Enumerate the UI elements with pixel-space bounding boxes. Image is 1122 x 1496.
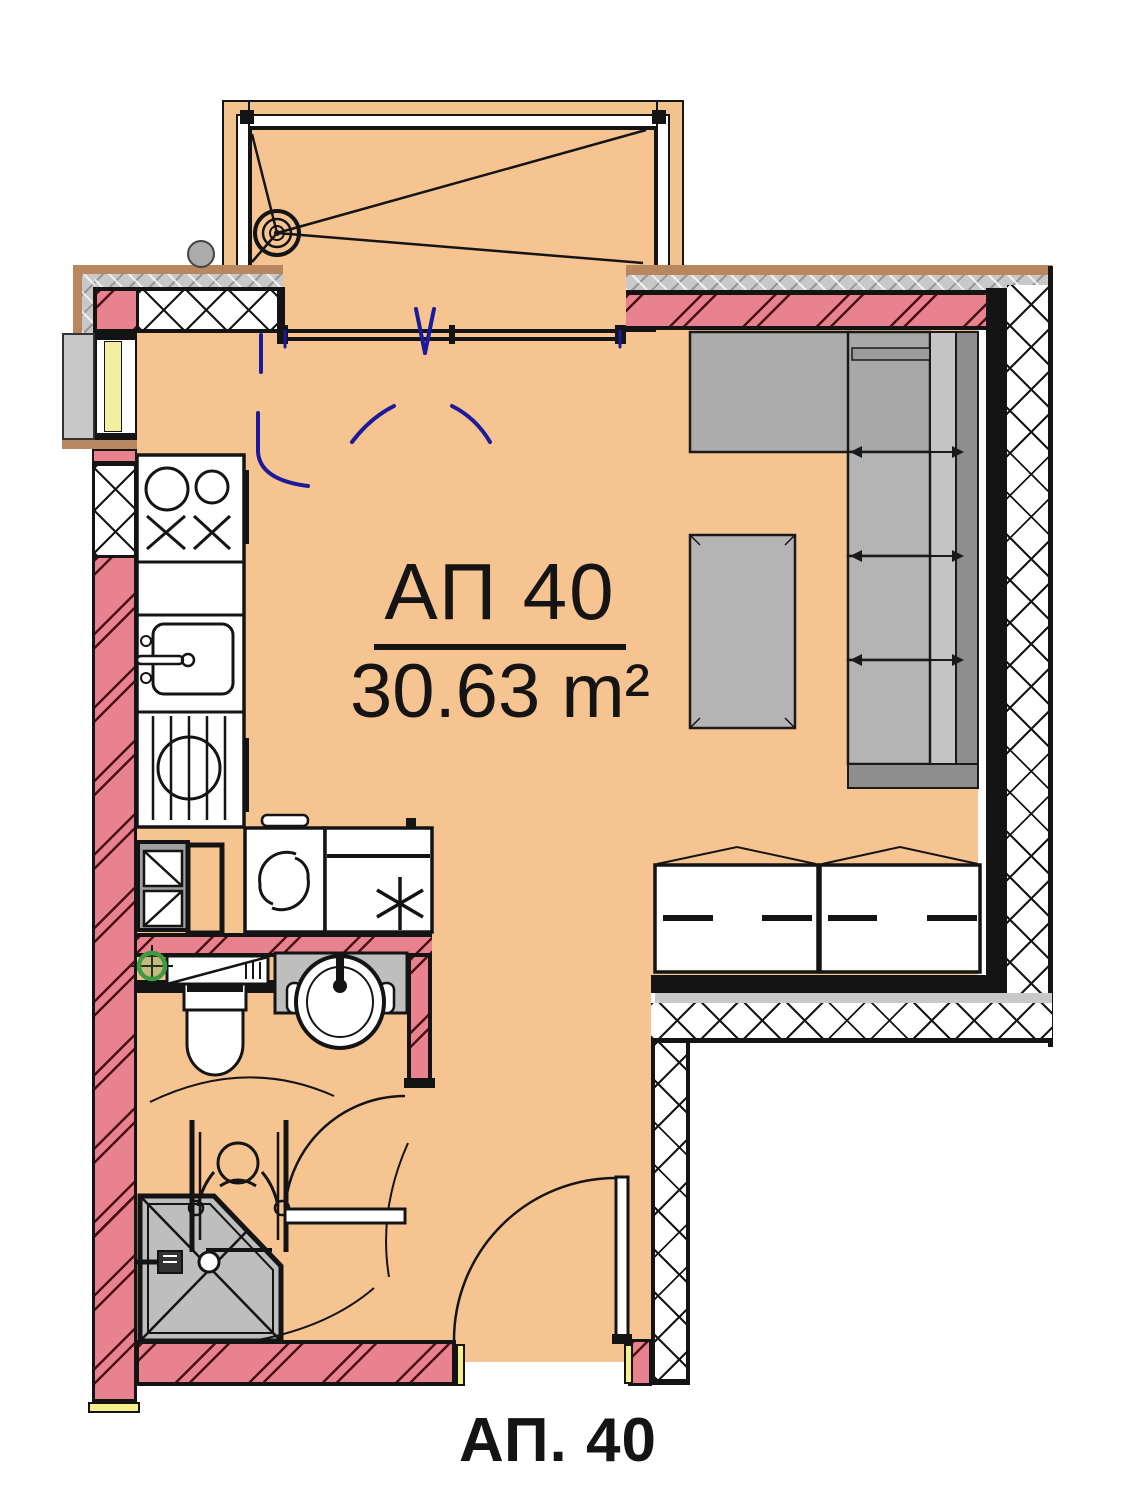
unit-label: АП 40 <box>290 550 710 650</box>
cabinet-icon <box>655 847 980 972</box>
bottom-unit-label: АП. 40 <box>418 1408 698 1473</box>
toilet-icon <box>184 984 246 1075</box>
fridge-icon <box>325 818 432 932</box>
balcony-sliding-door-icon <box>277 325 626 344</box>
floor-plan: АП 40 30.63 m² АП. 40 <box>0 0 1122 1496</box>
shower-icon <box>137 1196 281 1341</box>
downpipe-icon <box>188 241 214 267</box>
washing-machine-icon <box>245 828 325 932</box>
unit-title-block: АП 40 30.63 m² <box>290 550 710 732</box>
area-label: 30.63 m² <box>290 652 710 732</box>
bathroom-sink-icon <box>275 953 407 1048</box>
balcony-door-swing <box>258 309 620 486</box>
drain-icon <box>252 130 646 263</box>
bathroom-door-icon <box>285 1096 405 1223</box>
plan-linework <box>0 0 1122 1496</box>
entry-door-icon <box>454 1177 632 1344</box>
